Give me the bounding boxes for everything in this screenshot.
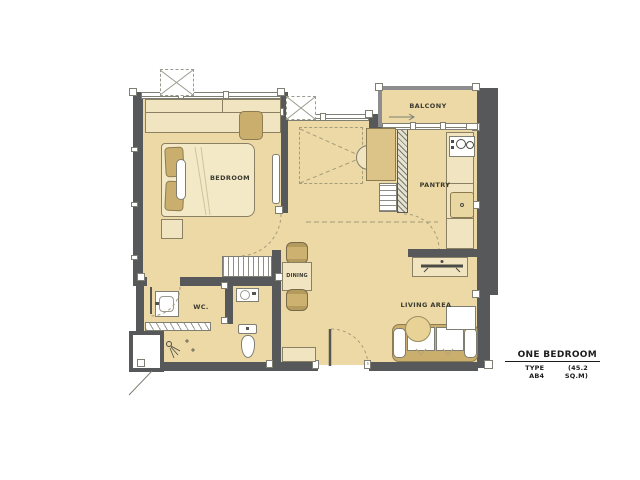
- shoe-cabinet: [222, 256, 272, 277]
- wall-balcony-top: [378, 86, 478, 90]
- shaft-drain-line: [129, 371, 152, 395]
- dressing-vanity-cabinet: [366, 128, 396, 181]
- entry-bench: [282, 347, 316, 362]
- nightstand: [161, 219, 183, 239]
- window-tick: [223, 91, 229, 99]
- unit-type-code: TYPE AB4: [509, 364, 544, 380]
- unit-type-title: ONE BEDROOM: [505, 350, 600, 362]
- dining-chair: [286, 242, 308, 264]
- stove-knob: [451, 146, 454, 149]
- bedroom-door-leaf: [272, 154, 280, 204]
- wall-end-cap: [275, 206, 283, 214]
- wall-joint-marker: [466, 123, 478, 130]
- wall-left-lower: [136, 286, 144, 333]
- stove-burner: [466, 141, 474, 149]
- living-area-label: LIVING AREA: [395, 301, 457, 310]
- wardrobe-divider-line: [222, 99, 223, 112]
- wall-joint-marker: [484, 360, 493, 369]
- wall-bottom-right: [369, 362, 478, 371]
- wall-joint-marker: [472, 83, 480, 91]
- wall-bedroom-east: [281, 112, 288, 213]
- linen-shelf-unit: [379, 183, 397, 212]
- sofa-round-cushion: [405, 316, 431, 342]
- dining-label: DINING: [282, 272, 312, 281]
- tv-console: [412, 257, 468, 277]
- wall-joint-marker: [472, 290, 480, 298]
- title-block: ONE BEDROOM TYPE AB4 (45.2 SQ.M): [505, 350, 600, 380]
- sink-drain: [460, 203, 464, 207]
- wall-pantry-bottom: [408, 249, 477, 257]
- sofa-armrest: [393, 328, 406, 358]
- balcony-label: BALCONY: [398, 102, 458, 111]
- ac-condenser-unit: [286, 96, 316, 120]
- wall-joint-marker: [266, 360, 273, 368]
- wc-vanity-bowl: [240, 290, 250, 300]
- wall-tick: [131, 147, 138, 152]
- counter-divider: [446, 218, 474, 219]
- wc-label: WC.: [186, 303, 216, 312]
- service-shaft: [129, 331, 164, 372]
- wall-joint-marker: [137, 359, 145, 367]
- window-tick: [440, 122, 446, 130]
- dining-chair: [286, 289, 308, 311]
- wc-sliding-door: [145, 322, 211, 331]
- wall-tick: [131, 255, 138, 260]
- bedroom-label: BEDROOM: [194, 174, 266, 183]
- wall-balcony-left: [378, 86, 382, 127]
- sofa-seat-cushion: [436, 327, 464, 351]
- wall-wc-north-b: [180, 277, 281, 286]
- ac-condenser-unit: [160, 69, 194, 96]
- wall-joint-marker: [277, 88, 285, 96]
- wall-bottom-left: [141, 362, 318, 371]
- sofa-armrest: [464, 328, 477, 358]
- unit-type-details: TYPE AB4 (45.2 SQ.M): [505, 362, 600, 380]
- wall-joint-marker: [129, 88, 137, 96]
- unit-area: (45.2 SQ.M): [544, 364, 588, 380]
- wall-joint-marker: [221, 282, 228, 289]
- wc-sink-bowl: [159, 296, 174, 312]
- wc-vanity-faucet: [252, 292, 256, 295]
- wall-right-upper: [477, 88, 498, 295]
- pantry-label: PANTRY: [408, 181, 462, 190]
- window-tick: [320, 113, 326, 121]
- window-tick: [410, 122, 416, 130]
- wall-tick: [131, 202, 138, 207]
- bedroom-stool: [239, 111, 263, 140]
- wall-pantry-west-hatched: [397, 127, 408, 213]
- toilet-flush-button: [246, 327, 249, 330]
- wall-joint-marker: [375, 83, 383, 91]
- overhead-wardrobe-dashed: [299, 127, 363, 184]
- wall-right-lower: [477, 295, 490, 368]
- wc-sink-faucet: [155, 302, 159, 305]
- wall-joint-marker: [221, 317, 228, 324]
- bed-bolster: [176, 159, 186, 200]
- wall-joint-marker: [137, 273, 145, 281]
- stove-knob: [451, 140, 454, 143]
- door-jamb-marker: [364, 360, 371, 369]
- wall-joint-marker: [365, 110, 373, 118]
- stove-burner: [456, 139, 466, 149]
- floorplan-canvas: BEDROOM PANTRY BALCONY DINING WC. LIVING…: [0, 0, 640, 480]
- wall-wc-east: [272, 250, 281, 362]
